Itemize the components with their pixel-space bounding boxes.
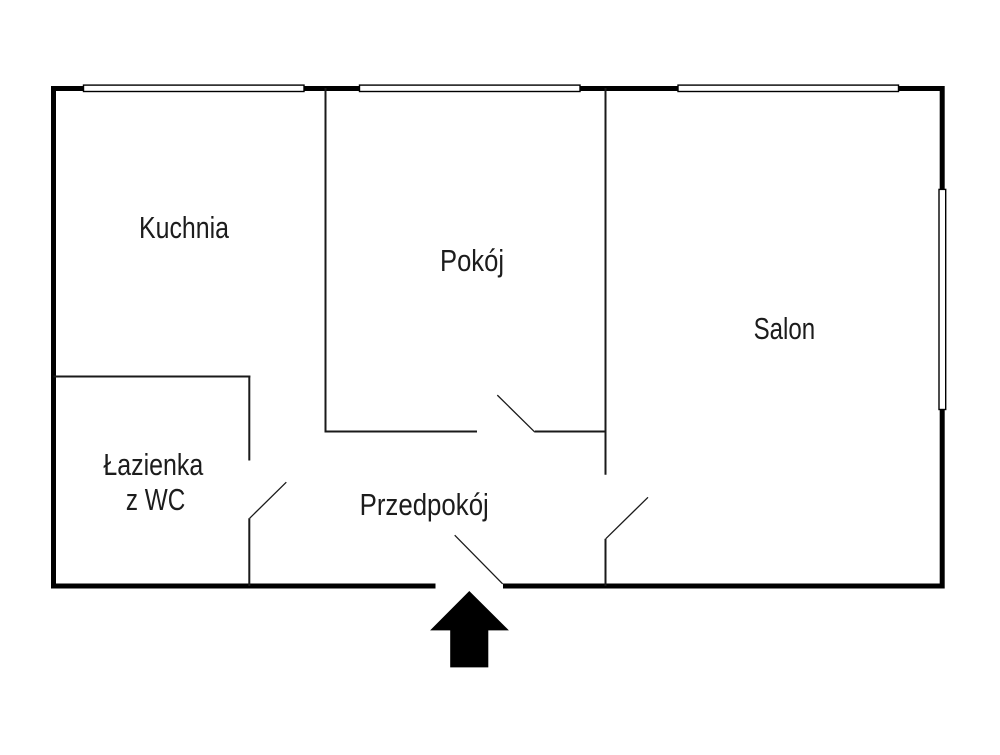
svg-text:Łazienka: Łazienka: [103, 447, 204, 482]
svg-text:Przedpokój: Przedpokój: [360, 487, 489, 522]
svg-text:Kuchnia: Kuchnia: [139, 210, 230, 245]
svg-text:Salon: Salon: [754, 311, 816, 346]
svg-text:Pokój: Pokój: [440, 243, 504, 278]
svg-text:z WC: z WC: [126, 482, 185, 517]
